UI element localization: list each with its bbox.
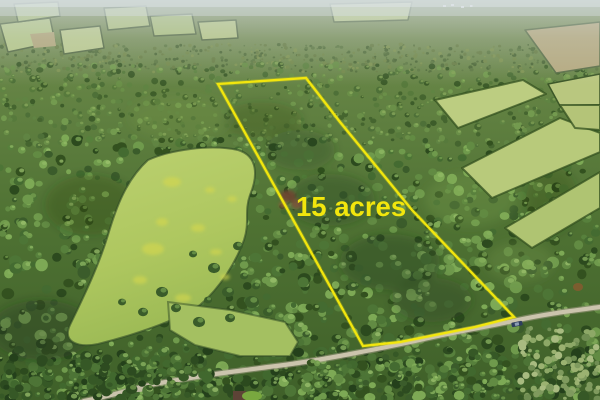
autumn-tree [573,283,583,291]
atmospheric-haze [0,0,600,85]
aerial-photo: 15 acres [0,0,600,400]
aerial-photo-canvas: 15 acres [0,0,600,400]
roadside-structure [233,391,262,400]
acreage-label: 15 acres [296,191,406,222]
